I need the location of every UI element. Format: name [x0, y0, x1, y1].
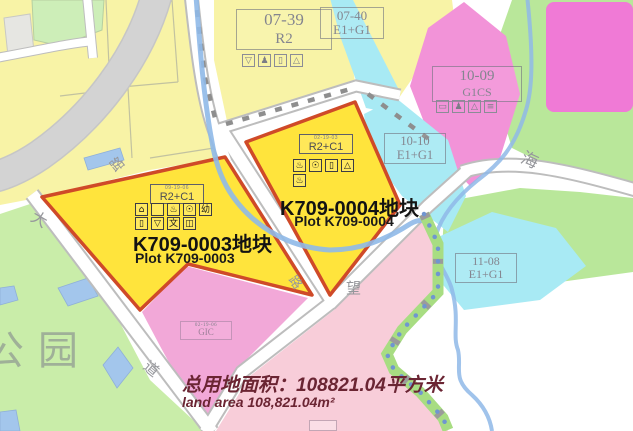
blank-icon	[151, 203, 164, 216]
parcel-07-39-icons: ▽ ♟ ▯ △	[242, 54, 303, 67]
plot-0003-icons-row1: ⌂ ♨ ☉ 幼	[135, 203, 212, 216]
parcel-code: 11-08	[472, 254, 500, 268]
planning-map: 07-39 R2 ▽ ♟ ▯ △ 07-40 E1+G1 10-09 G1CS …	[0, 0, 633, 431]
plot-0004-zone-box: 02-19-03 R2+C1	[299, 134, 353, 154]
people-icon: ♟	[258, 54, 271, 67]
parcel-code: 07-39	[264, 10, 304, 29]
park-label: 公园	[0, 318, 92, 376]
plot-zone: R2+C1	[160, 191, 195, 203]
house-icon: ⌂	[135, 203, 148, 216]
parcel-zone: G1CS	[462, 85, 491, 99]
parcel-label-10-09: 10-09 G1CS	[432, 66, 522, 102]
road-label-wang: 望	[346, 277, 361, 298]
market-icon: ♨	[293, 159, 306, 172]
sign-icon: ▭	[436, 100, 449, 113]
parcel-label-07-39: 07-39 R2	[236, 9, 332, 50]
community-icon: ☉	[309, 159, 322, 172]
people-icon: ♟	[452, 100, 465, 113]
parcel-label-gic: 02-19-06 GIC	[180, 321, 232, 340]
total-land-area-cn: 总用地面积：108821.04平方米	[182, 370, 443, 397]
triangle-icon: △	[468, 100, 481, 113]
parcel-label-10-10: 10-10 E1+G1	[384, 133, 446, 164]
kindergarten-icon: 幼	[199, 203, 212, 216]
parcel-label-11-08: 11-08 E1+G1	[455, 253, 517, 283]
plot-zone: R2+C1	[309, 141, 344, 153]
plot-0004-icons-row2: ♨	[293, 174, 306, 187]
cart-icon: ♨	[293, 174, 306, 187]
parcel-code: 10-09	[460, 68, 495, 84]
triangle-icon: △	[290, 54, 303, 67]
plot-0004-subtitle: Plot K709-0004	[280, 213, 408, 229]
cutoff-label-box	[309, 420, 337, 431]
parcel-code: 10-10	[400, 134, 429, 148]
parcel-code: 07-40	[337, 8, 367, 23]
market-icon: ♨	[167, 203, 180, 216]
parcel-zone: R2	[275, 31, 293, 47]
capsule-icon: ▯	[274, 54, 287, 67]
parcel-zone: GIC	[198, 327, 214, 337]
total-land-area-en: land area 108,821.04m²	[182, 394, 335, 410]
plot-0004-icons-row1: ♨ ☉ ▯ △	[293, 159, 354, 172]
parcel-label-07-40: 07-40 E1+G1	[320, 7, 384, 39]
triangle-icon: △	[341, 159, 354, 172]
parcel-zone: E1+G1	[469, 267, 504, 281]
parcel-10-09-icons: ▭ ♟ △ ≡	[436, 100, 497, 113]
plot-0003-zone-box: 09-19-06 R2+C1	[150, 184, 204, 204]
lines-icon: ≡	[484, 100, 497, 113]
capsule-icon: ▯	[325, 159, 338, 172]
parcel-zone: E1+G1	[333, 22, 371, 37]
community-icon: ☉	[183, 203, 196, 216]
triangle-down-icon: ▽	[242, 54, 255, 67]
parcel-zone: E1+G1	[397, 148, 433, 162]
magenta-parcel-topright	[546, 2, 633, 112]
plot-0003-subtitle: Plot K709-0003	[135, 250, 235, 266]
